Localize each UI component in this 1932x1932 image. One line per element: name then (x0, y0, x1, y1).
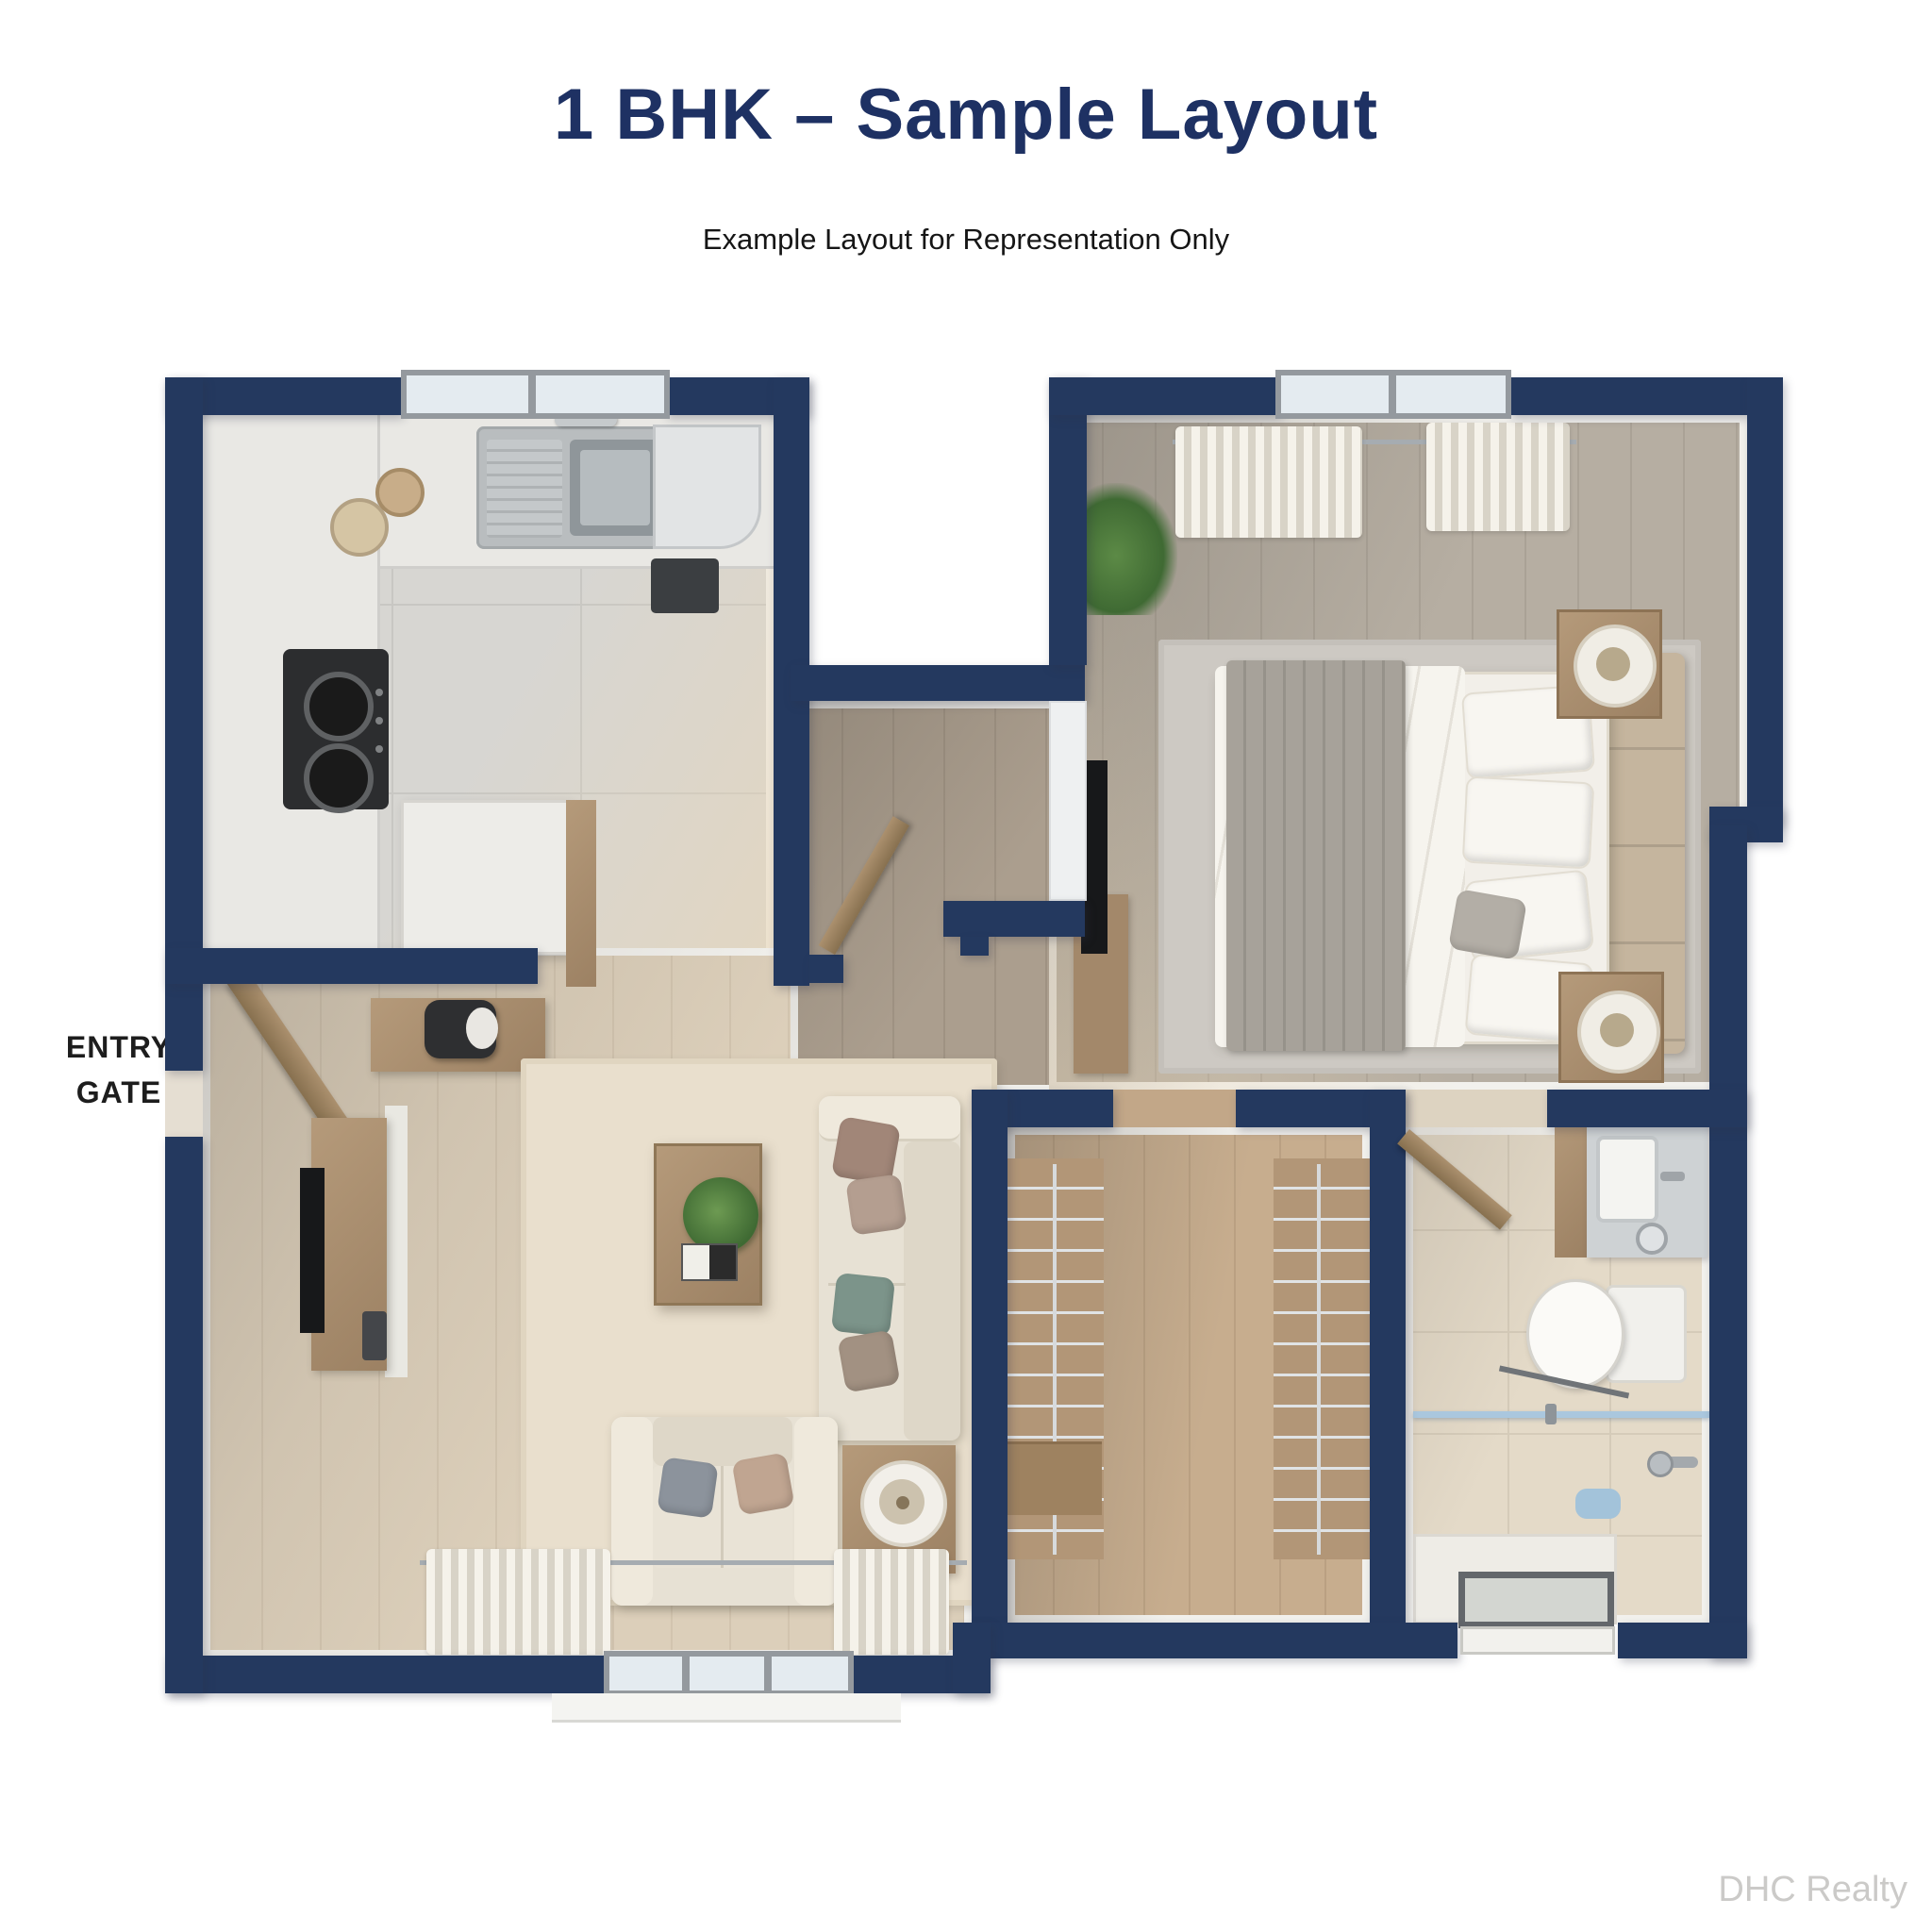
sofa-armrest (794, 1417, 838, 1606)
wall-foyer-tab (960, 937, 989, 956)
wall-bottom-right-b (1618, 1623, 1747, 1658)
nightstand-lamp-inner (1600, 1013, 1634, 1047)
wardrobe-rail-right (1274, 1158, 1370, 1559)
table-plant (683, 1177, 758, 1253)
wall-void-bottom (791, 665, 1085, 701)
bed-accent-cushion (1448, 889, 1527, 960)
glass-door-handle (1545, 1404, 1557, 1424)
lamp-finial (896, 1496, 909, 1509)
wall-bedroom-top-left (1049, 377, 1280, 415)
bathroom-accessory (1636, 1223, 1668, 1255)
balcony-sill (552, 1693, 901, 1723)
sofa-pillow (731, 1452, 794, 1515)
sofa-pillow (657, 1457, 719, 1519)
table-tray (681, 1243, 738, 1281)
basin-faucet (1660, 1172, 1685, 1181)
window-mullion (1389, 374, 1396, 415)
wall-kitchen-bottom (165, 948, 538, 984)
wall-bedroom-top-right (1509, 377, 1747, 415)
office-chair-armrest (466, 1008, 498, 1049)
wall-kitchen-right-tab (809, 955, 843, 983)
shower-glass-partition (1413, 1411, 1709, 1418)
living-window (604, 1651, 854, 1696)
curtain (426, 1549, 610, 1655)
sofa-armrest (611, 1417, 653, 1606)
wall-living-bottom-left (165, 1656, 608, 1693)
bed-pillow (1462, 776, 1595, 870)
wall-bottom-right-a (972, 1623, 1457, 1658)
window-mullion (764, 1655, 772, 1692)
kitchen-island-counter (401, 800, 569, 955)
sofa-pillow (837, 1329, 900, 1392)
kitchen-appliance (651, 558, 719, 613)
sofa-pillow (831, 1273, 895, 1337)
hob-burner (304, 672, 374, 741)
floor-plan (0, 0, 1932, 1932)
wardrobe-door-threshold (1113, 1090, 1236, 1127)
kitchen-jar (375, 468, 425, 517)
wardrobe-drawers (1008, 1441, 1102, 1515)
media-player (362, 1311, 387, 1360)
washbasin (1596, 1136, 1658, 1223)
entry-door-threshold (165, 1071, 203, 1137)
window-mullion (528, 374, 536, 415)
hob-burner (304, 743, 374, 813)
curtain (1426, 423, 1570, 531)
wall-bathroom-top (1547, 1090, 1747, 1127)
vanity-cabinet (1555, 1111, 1587, 1257)
wall-wardrobe-right (1370, 1090, 1406, 1623)
wall-left-lower (165, 1137, 203, 1693)
television (300, 1168, 325, 1333)
wall-bedroom-left-upper (1049, 377, 1087, 665)
bathroom-door-threshold (1406, 1090, 1547, 1127)
curtain (1175, 426, 1362, 538)
hob-knob (375, 717, 383, 724)
wall-right-lower (1709, 825, 1747, 1658)
nightstand-lamp-inner (1596, 647, 1630, 681)
shower-vent-sill (1460, 1626, 1615, 1655)
kitchen-island-side-panel (566, 800, 596, 987)
wall-foyer-stub (943, 901, 1085, 937)
wall-right-upper (1747, 377, 1783, 825)
hob-knob (375, 745, 383, 753)
shower-head (1647, 1451, 1674, 1477)
refrigerator (653, 425, 761, 549)
tv-backboard (385, 1106, 408, 1377)
bed-throw-blanket (1226, 660, 1406, 1051)
wall-bedroom-tv-partition (1049, 701, 1087, 901)
sink-basin-inner (580, 450, 650, 525)
wall-step-connector (953, 1623, 991, 1693)
sofa-seat-seam (721, 1466, 724, 1568)
sink-drainer (487, 440, 562, 538)
sofa-pillow (845, 1174, 908, 1236)
wardrobe-rod (1317, 1164, 1321, 1555)
curtain (834, 1549, 949, 1655)
hob-knob (375, 689, 383, 696)
watermark: DHC Realty (1718, 1870, 1907, 1910)
shower-mat (1575, 1489, 1621, 1519)
window-mullion (682, 1655, 690, 1692)
wall-wardrobe-left (972, 1090, 1008, 1623)
shower-drain (1458, 1572, 1614, 1628)
toilet-bowl (1526, 1279, 1624, 1389)
foyer-floor (791, 701, 1085, 1092)
sofa-back-cushions (904, 1141, 960, 1441)
